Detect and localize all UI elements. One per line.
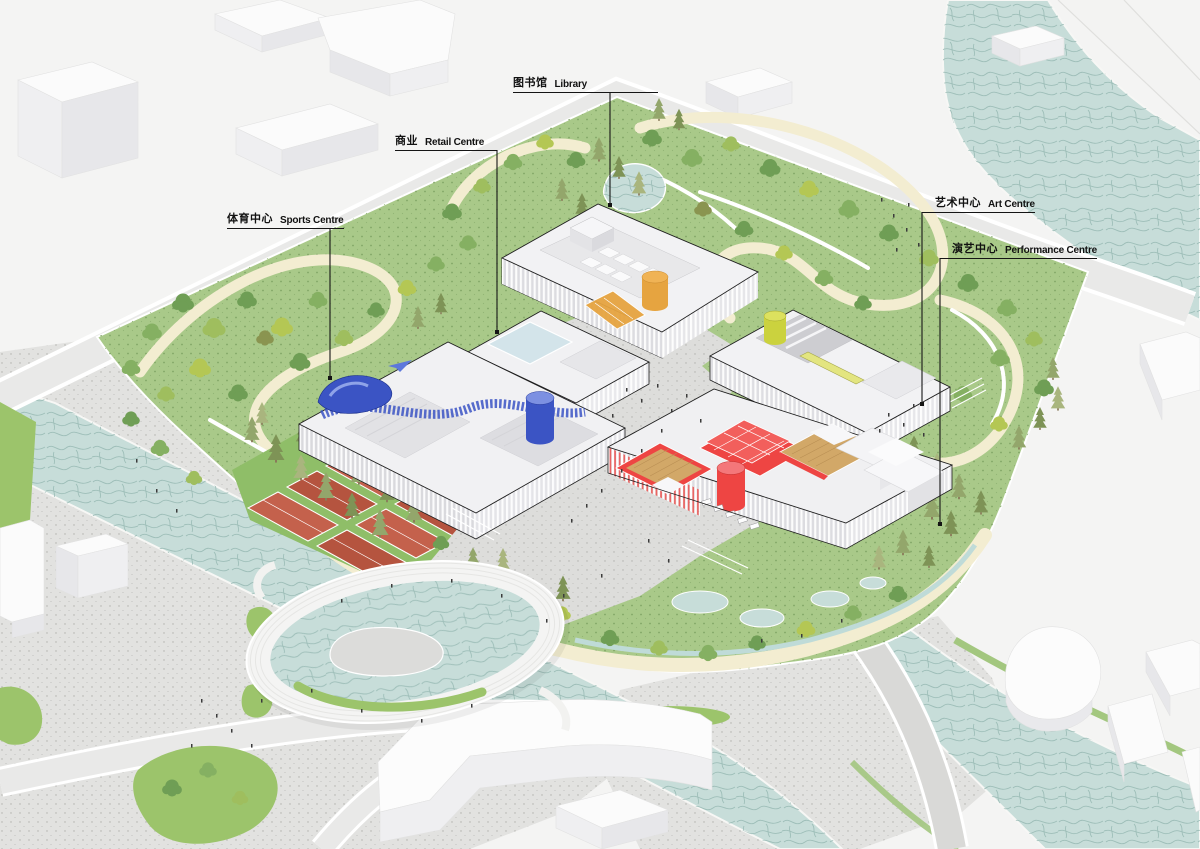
label-library-en: Library — [555, 79, 588, 90]
label-performance-en: Performance Centre — [1005, 245, 1097, 256]
ring-island — [330, 627, 443, 676]
label-retail-zh: 商业 — [395, 132, 418, 148]
site-plan-rendering — [0, 0, 1200, 849]
label-library-zh: 图书馆 — [513, 74, 548, 90]
site-plan-scene: 图书馆 Library 商业 Retail Centre 体育中心 Sports… — [0, 0, 1200, 849]
library-orange-cylinder — [642, 271, 668, 311]
label-sports-en: Sports Centre — [280, 215, 344, 226]
label-art: 艺术中心 Art Centre — [922, 194, 1035, 213]
label-sports-zh: 体育中心 — [227, 210, 273, 226]
label-art-en: Art Centre — [988, 199, 1035, 210]
label-retail: 商业 Retail Centre — [395, 132, 497, 151]
art-yellow-cylinder — [764, 311, 786, 345]
park-pond — [604, 164, 666, 213]
label-art-zh: 艺术中心 — [935, 194, 981, 210]
label-performance-zh: 演艺中心 — [952, 240, 998, 256]
label-sports: 体育中心 Sports Centre — [227, 210, 344, 229]
label-performance: 演艺中心 Performance Centre — [940, 240, 1097, 259]
performance-red-cylinder — [717, 462, 745, 512]
label-library: 图书馆 Library — [513, 74, 658, 93]
sports-blue-cylinder — [526, 392, 554, 445]
label-retail-en: Retail Centre — [425, 137, 484, 148]
